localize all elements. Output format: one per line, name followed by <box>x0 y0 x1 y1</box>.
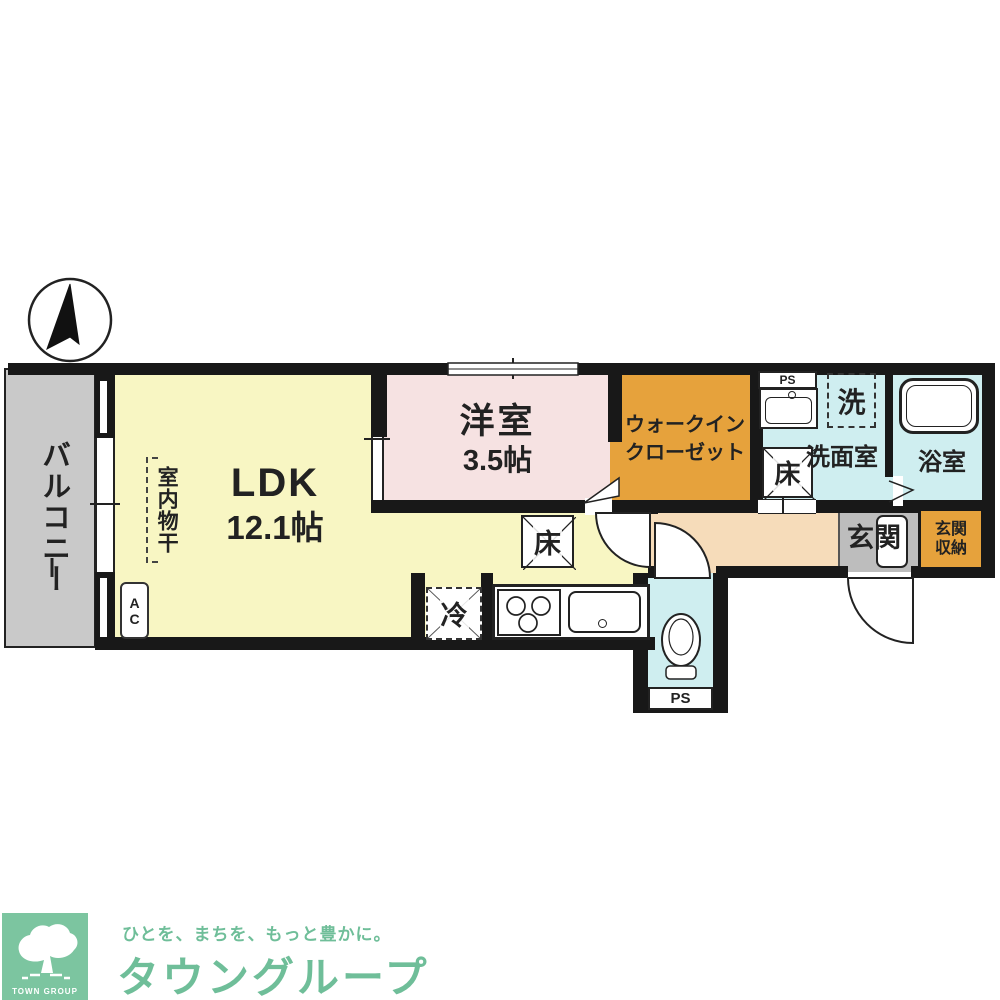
washroom-sliding-door <box>758 499 816 514</box>
wall-wic-bottom <box>610 500 760 513</box>
logo-brand: タウングループ <box>117 944 677 1000</box>
bedroom-partition-window <box>371 437 384 502</box>
floor-hatch-label: 床 <box>533 522 562 561</box>
wall-hall-stub-bottom <box>648 566 658 578</box>
pipe-space-top: PS <box>758 371 817 389</box>
balcony-window <box>95 438 115 572</box>
wic-label-2: クローゼット <box>617 440 753 466</box>
ldk-size-label: 12.1帖 <box>190 508 360 548</box>
bedroom-doorway <box>585 498 612 515</box>
wic-label-1: ウォークイン <box>617 412 753 438</box>
floorplan-page: 床 床 冷 洗 PS PS AC 玄関 収納 バルコニー 室内物干 L <box>0 0 1000 1000</box>
north-compass-icon <box>29 279 111 361</box>
bath-doorway <box>893 476 903 506</box>
wall-toilet-right <box>713 573 728 713</box>
indoor-drying-label: 室内物干 <box>152 460 180 560</box>
wall-bedroom-bottom <box>371 500 587 513</box>
entrance-storage: 玄関 収納 <box>918 508 984 570</box>
entrance-storage-label-2: 収納 <box>935 539 967 558</box>
wall-bedroom-left <box>371 367 387 437</box>
entrance-label: 玄関 <box>838 523 910 555</box>
stove-icon <box>497 589 561 636</box>
washroom-label: 洗面室 <box>792 445 892 471</box>
tree-icon <box>2 913 88 983</box>
window-stripe-lower <box>100 578 107 638</box>
wall-entrance-left <box>716 566 848 578</box>
window-stripe-upper <box>100 381 107 433</box>
town-group-badge-text: TOWN GROUP <box>2 987 88 996</box>
room-toilet <box>645 573 716 695</box>
fridge-label: 冷 <box>440 594 469 633</box>
fridge-space: 冷 <box>426 587 482 640</box>
pipe-space-bottom: PS <box>648 687 713 710</box>
ac-label: AC <box>127 595 143 627</box>
ac-unit: AC <box>120 582 149 639</box>
washer-label: 洗 <box>836 381 866 421</box>
bathroom-label: 浴室 <box>908 450 976 476</box>
washer-space: 洗 <box>827 373 876 428</box>
balcony-label: バルコニー <box>34 432 72 602</box>
bathtub-icon <box>899 378 979 434</box>
town-group-logo: TOWN GROUP <box>2 913 88 1000</box>
floor-hatch-ldk: 床 <box>521 515 574 568</box>
wall-fridge-stub-left <box>411 573 425 640</box>
kitchen-sink-icon <box>568 591 641 633</box>
ldk-label: LDK <box>195 462 355 504</box>
bedroom-label: 洋室 <box>425 402 570 442</box>
wall-hall-stub-top <box>648 500 658 514</box>
vanity-sink-icon <box>759 388 818 429</box>
bedroom-size-label: 3.5帖 <box>425 444 570 480</box>
logo-tagline: ひとを、まちを、もっと豊かに。 <box>122 920 642 945</box>
entrance-storage-label-1: 玄関 <box>935 520 967 539</box>
room-walk-in-closet <box>610 367 756 510</box>
ps-label: PS <box>670 690 690 707</box>
ps-label: PS <box>779 373 795 387</box>
